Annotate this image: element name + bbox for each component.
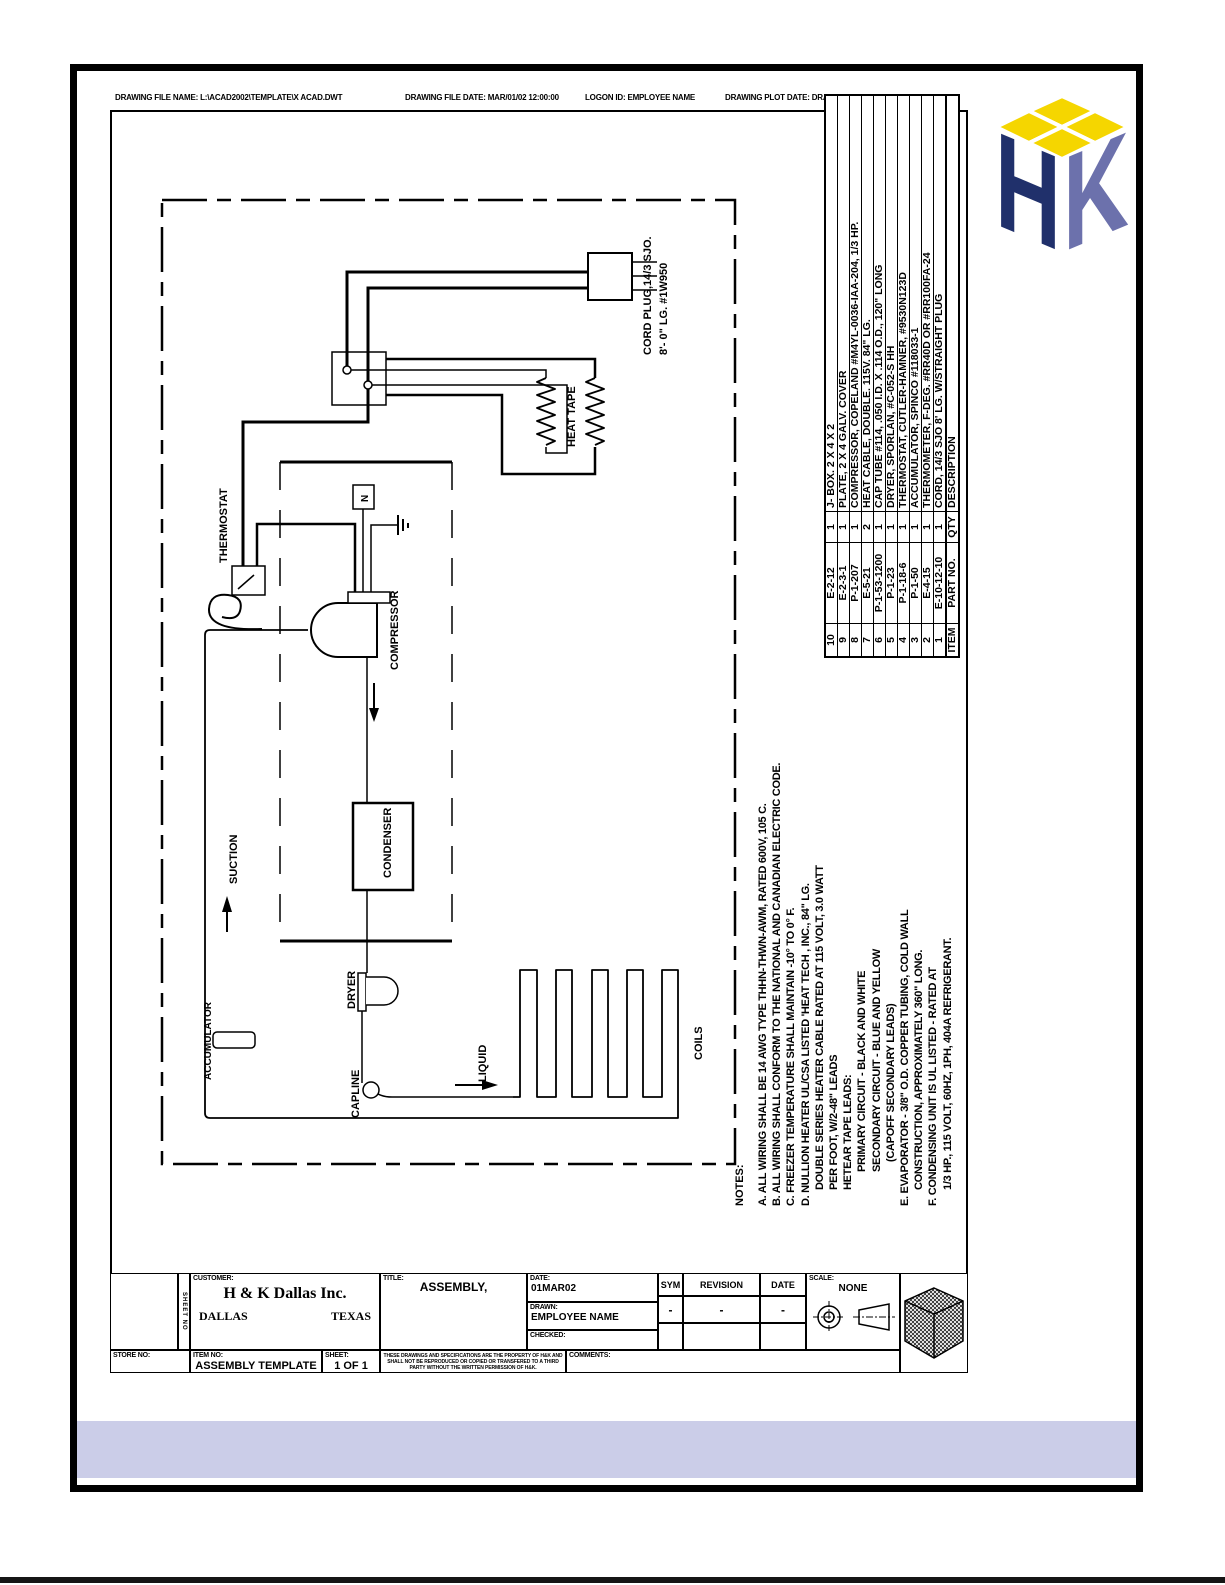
cube-cell	[900, 1273, 968, 1373]
note-line: PRIMARY CIRCUIT - BLACK AND WHITE	[855, 726, 869, 1206]
table-row: 10E-2-121J- BOX. 2 X 4 X 2	[825, 95, 838, 657]
title-block: SHEET NO CUSTOMER: H & K Dallas Inc. DAL…	[110, 1273, 968, 1373]
note-line: DOUBLE SERIES HEATER CABLE RATED AT 115 …	[813, 726, 827, 1206]
plot-date-field: DRAWING PLOT DATE: DRAFT	[725, 93, 838, 102]
sym-empty-cell	[658, 1323, 683, 1350]
comments-label: COMMENTS:	[567, 1351, 899, 1360]
revision-label: REVISION	[700, 1280, 743, 1290]
title-label: TITLE:	[381, 1274, 406, 1283]
compressor-terminal-strip	[348, 592, 390, 603]
junction-box-symbol	[332, 352, 386, 405]
label-thermostat: THERMOSTAT	[218, 488, 230, 563]
flow-arrow-down-head	[369, 708, 379, 722]
note-line: B. ALL WIRING SHALL CONFORM TO THE NATIO…	[770, 726, 784, 1206]
accumulator-symbol	[213, 1032, 255, 1048]
label-cord-plug-1: CORD PLUG,14/3 SJO.	[642, 236, 654, 355]
note-line: HETEAR TAPE LEADS:	[841, 726, 855, 1206]
table-row: 9E-2-3-11PLATE, 2 X 4 GALV. COVER	[838, 95, 850, 657]
notes-block: NOTES: A. ALL WIRING SHALL BE 14 AWG TYP…	[734, 726, 966, 1206]
note-line: F. CONDENSING UNIT IS UL LISTED - RATED …	[926, 726, 940, 1206]
evaporator-coils	[205, 630, 678, 1118]
wire-ground	[371, 525, 398, 592]
label-neutral: N	[360, 495, 371, 502]
logo-letter-k: K	[1063, 103, 1129, 266]
dryer-symbol	[366, 977, 398, 1005]
hk-logo: H K	[983, 84, 1141, 266]
label-liquid: LIQUID	[477, 1045, 489, 1082]
note-line: A. ALL WIRING SHALL BE 14 AWG TYPE THHN-…	[756, 726, 770, 1206]
label-capline: CAPLINE	[350, 1070, 362, 1118]
dryer-flange	[358, 973, 366, 1011]
heat-tape-coil-left	[537, 378, 555, 445]
file-date-field: DRAWING FILE DATE: MAR/01/02 12:00:00	[405, 93, 559, 102]
note-line: C. FREEZER TEMPERATURE SHALL MAINTAIN -1…	[784, 726, 798, 1206]
customer-label: CUSTOMER:	[191, 1274, 379, 1283]
label-dryer: DRYER	[346, 971, 358, 1009]
item-no-cell: ITEM NO: ASSEMBLY TEMPLATE B	[190, 1350, 322, 1373]
sheet-label: SHEET:	[323, 1351, 379, 1360]
title-cell: TITLE: ASSEMBLY,	[380, 1273, 527, 1350]
item-no-value: ASSEMBLY TEMPLATE B	[191, 1360, 321, 1373]
customer-name: H & K Dallas Inc.	[191, 1285, 379, 1303]
thermostat-bulb	[209, 595, 262, 629]
wire-heat-tape-2	[351, 370, 546, 378]
label-compressor: COMPRESSOR	[389, 590, 401, 670]
revision-dash: -	[720, 1303, 724, 1317]
rev-date-empty-cell	[760, 1323, 806, 1350]
label-coils: COILS	[693, 1026, 705, 1060]
rev-date-header-cell: DATE	[760, 1273, 806, 1296]
notes-title: NOTES:	[734, 726, 746, 1206]
parts-list: 10E-2-121J- BOX. 2 X 4 X 2 9E-2-3-11PLAT…	[824, 113, 970, 658]
sheet-no-vertical-cell: SHEET NO	[178, 1273, 190, 1350]
table-header-row: ITEMPART NO.QTYDESCRIPTION	[946, 95, 959, 657]
note-line: SECONDARY CIRCUIT - BLUE AND YELLOW	[870, 726, 884, 1206]
drawn-cell: DRAWN: EMPLOYEE NAME	[527, 1302, 658, 1330]
customer-city: DALLAS	[199, 1309, 248, 1324]
table-row: 6P-1-53-12001CAP TUBE #114, .050 I.D. X …	[874, 95, 886, 657]
sym-label: SYM	[661, 1280, 681, 1290]
table-row: 7E-5-212HEAT CABLE, DOUBLE. 115V. 84" LG…	[862, 95, 874, 657]
rev-date-label: DATE	[771, 1280, 795, 1290]
customer-cell: CUSTOMER: H & K Dallas Inc. DALLAS TEXAS	[190, 1273, 380, 1350]
label-accumulator: ACCUMULATOR	[203, 1001, 214, 1080]
note-line: D. NULLION HEATER UL/CSA LISTED 'HEAT TE…	[799, 726, 813, 1206]
empty-cell	[110, 1273, 178, 1350]
revision-value-cell: -	[683, 1296, 760, 1323]
note-line: CONSTRUCTION, APPROXIMATELY 360" LONG.	[912, 726, 926, 1206]
date-label: DATE:	[528, 1274, 657, 1283]
note-line: (CAPOFF SECONDARY LEADS)	[884, 726, 898, 1206]
scale-label: SCALE:	[807, 1274, 836, 1283]
suction-arrow-head	[222, 896, 232, 912]
rev-date-dash: -	[781, 1303, 785, 1317]
table-row: 4P-1-18-61THERMOSTAT, CUTLER-HAMNER, #95…	[898, 95, 910, 657]
disclaimer-cell: THESE DRAWINGS AND SPECIFICATIONS ARE TH…	[380, 1350, 566, 1373]
label-suction: SUCTION	[228, 834, 240, 884]
isometric-cube-icon	[901, 1286, 967, 1373]
sym-value-cell: -	[658, 1296, 683, 1323]
store-no-cell: STORE NO:	[110, 1350, 190, 1373]
note-line: E. EVAPORATOR - 3/8" O.D. COPPER TUBING,…	[898, 726, 912, 1206]
table-row: 8P-1-2071COMPRESSOR, COPELAND #M4YL-0036…	[850, 95, 862, 657]
third-angle-projection-icon	[807, 1296, 899, 1340]
logon-id-field: LOGON ID: EMPLOYEE NAME	[585, 93, 695, 102]
ground-icon	[398, 515, 408, 535]
logo-letter-h: H	[995, 102, 1061, 266]
store-no-label: STORE NO:	[111, 1351, 189, 1360]
date-cell: DATE: 01MAR02	[527, 1273, 658, 1302]
capillary-line	[378, 1094, 513, 1097]
comments-cell: COMMENTS:	[566, 1350, 900, 1373]
customer-state: TEXAS	[331, 1309, 371, 1324]
table-row: 1E-10-12-101CORD, 14/3 SJO 8' LG. W/STRA…	[934, 95, 947, 657]
sheet-no-vertical-label: SHEET NO	[181, 1292, 187, 1331]
scale-value: NONE	[807, 1283, 899, 1294]
label-cord-plug-2: 8'- 0" LG. #1W950	[658, 263, 670, 355]
date-value: 01MAR02	[528, 1283, 657, 1294]
note-line: 1/3 HP., 115 VOLT, 60HZ, 1PH, 404A REFRI…	[941, 726, 955, 1206]
sheet-value: 1 OF 1	[323, 1360, 379, 1372]
note-line: PER FOOT, W/2-48" LEADS	[827, 726, 841, 1206]
item-no-label: ITEM NO:	[191, 1351, 321, 1360]
bottom-strip	[0, 1577, 1225, 1583]
checked-cell: CHECKED:	[527, 1330, 658, 1350]
drawn-label: DRAWN:	[528, 1303, 657, 1312]
disclaimer-text: THESE DRAWINGS AND SPECIFICATIONS ARE TH…	[381, 1351, 565, 1371]
sym-dash: -	[669, 1303, 673, 1317]
revision-empty-cell	[683, 1323, 760, 1350]
compressor-symbol	[311, 603, 377, 657]
capline-loop	[363, 1082, 379, 1098]
table-row: 3P-1-501ACCUMULATOR, SPINCO #118033-1	[910, 95, 922, 657]
wire-thermostat-compressor	[257, 524, 355, 592]
sym-header-cell: SYM	[658, 1273, 683, 1296]
drawing-sheet: DRAWING FILE NAME: L:\ACAD2002\TEMPLATE\…	[0, 0, 1225, 1585]
wire-heat-tape-1	[386, 359, 595, 378]
revision-header-cell: REVISION	[683, 1273, 760, 1296]
label-condenser: CONDENSER	[382, 808, 394, 878]
scale-cell: SCALE: NONE	[806, 1273, 900, 1350]
heat-tape-coil-right	[586, 378, 604, 445]
drawn-value: EMPLOYEE NAME	[528, 1312, 657, 1323]
file-name-field: DRAWING FILE NAME: L:\ACAD2002\TEMPLATE\…	[115, 93, 342, 102]
terminal-2	[364, 381, 372, 389]
sheet-cell: SHEET: 1 OF 1	[322, 1350, 380, 1373]
table-row: 5P-1-231DRYER, SPORLAN, #C-052-S HH	[886, 95, 898, 657]
terminal-1	[343, 366, 351, 374]
label-heat-tape: HEAT TAPE	[566, 386, 578, 447]
checked-label: CHECKED:	[528, 1331, 657, 1340]
cord-plug-symbol	[588, 253, 632, 300]
rev-date-value-cell: -	[760, 1296, 806, 1323]
table-row: 2E-4-151THERMOMETER, F-DEG. #RR40D OR #R…	[922, 95, 934, 657]
footer-band	[77, 1421, 1136, 1478]
